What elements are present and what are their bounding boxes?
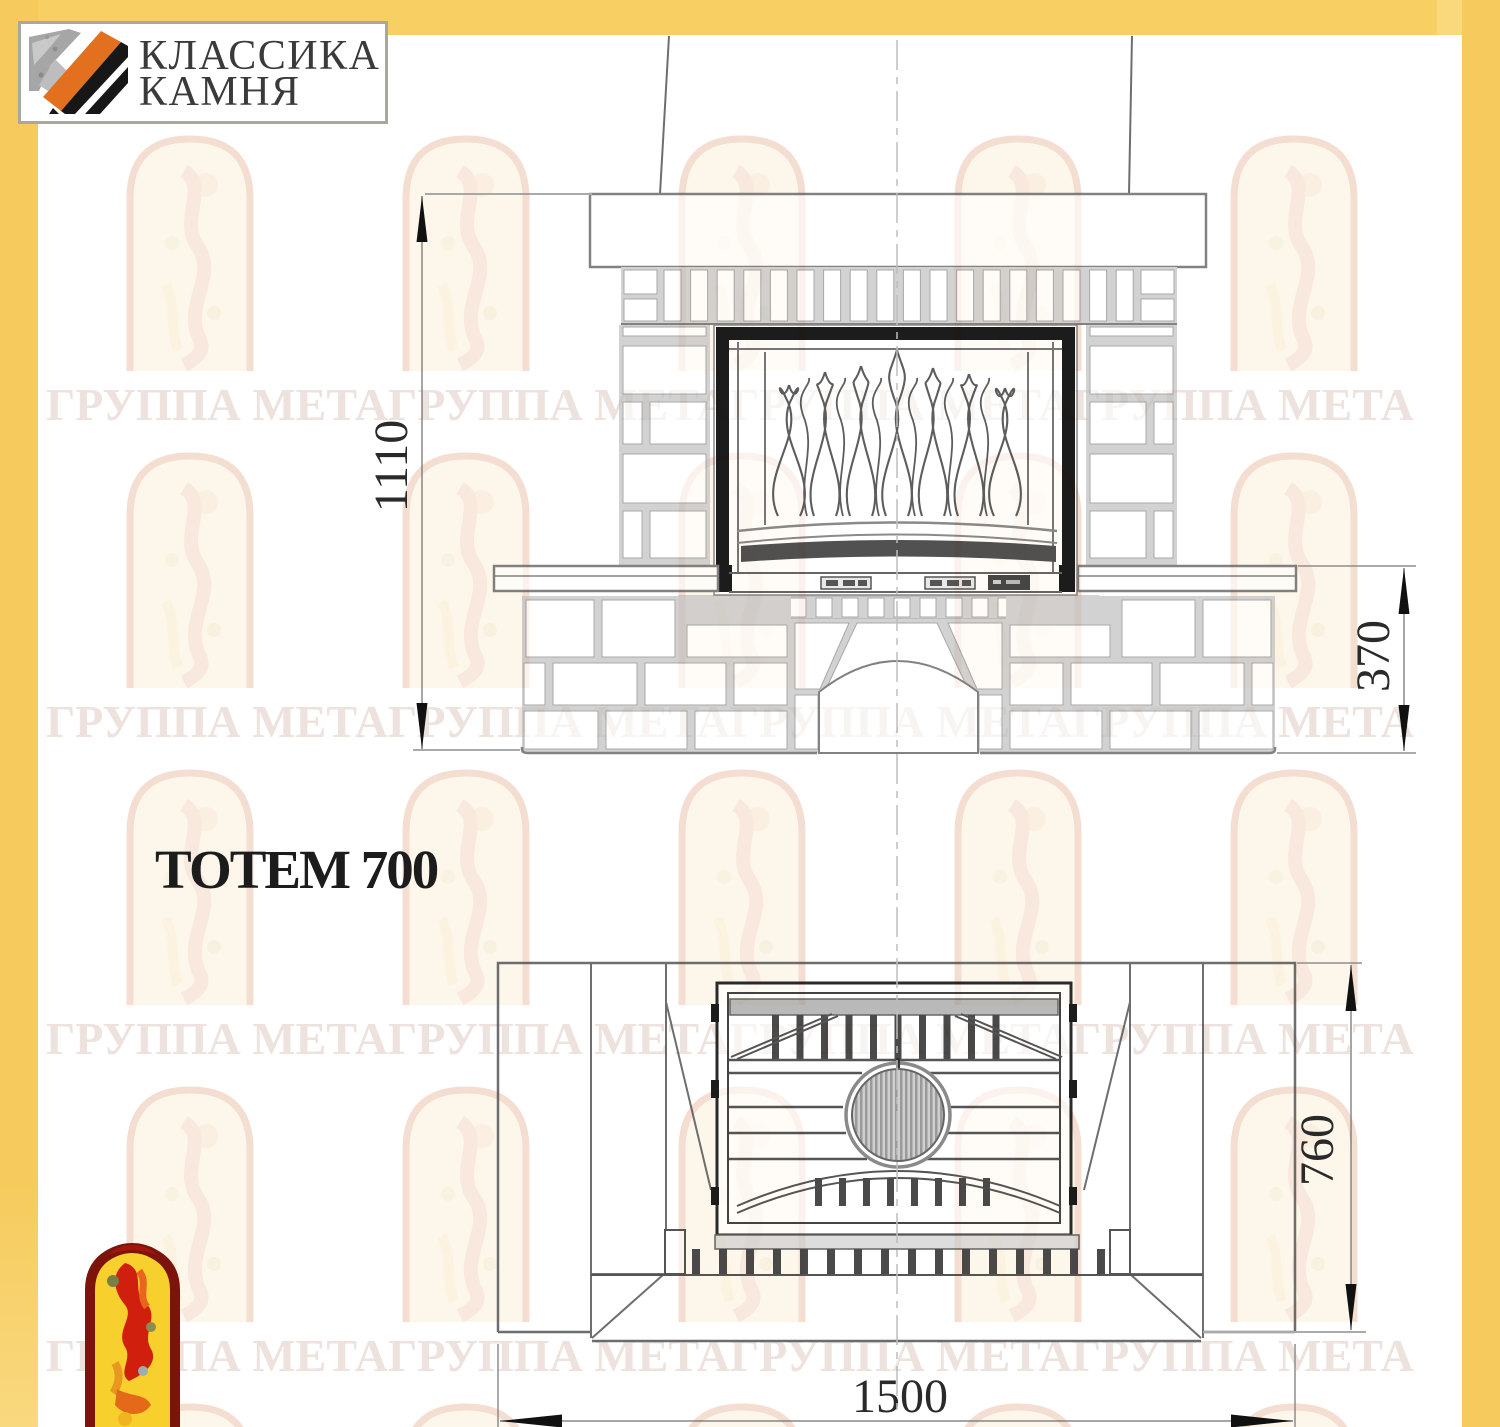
svg-text:ГРУППА МЕТАГРУППА МЕТАГРУППА М: ГРУППА МЕТАГРУППА МЕТАГРУППА МЕТАГРУППА …	[46, 379, 1414, 430]
svg-text:ГРУППА МЕТАГРУППА МЕТАГРУППА М: ГРУППА МЕТАГРУППА МЕТАГРУППА МЕТАГРУППА …	[46, 696, 1414, 747]
svg-text:ГРУППА МЕТАГРУППА МЕТАГРУППА М: ГРУППА МЕТАГРУППА МЕТАГРУППА МЕТАГРУППА …	[46, 1013, 1414, 1064]
svg-text:ГРУППА МЕТАГРУППА МЕТАГРУППА М: ГРУППА МЕТАГРУППА МЕТАГРУППА МЕТАГРУППА …	[46, 1330, 1414, 1381]
